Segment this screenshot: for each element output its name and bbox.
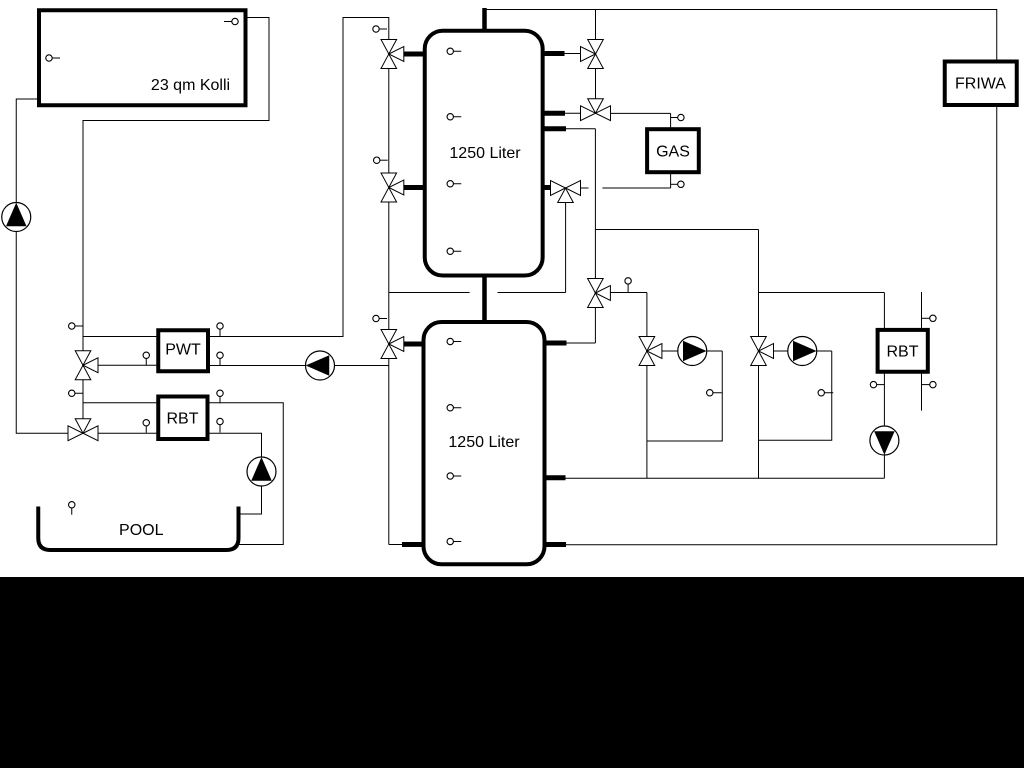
svg-text:FRIWA: FRIWA	[955, 75, 1006, 92]
svg-text:RBT: RBT	[167, 411, 199, 428]
svg-text:23 qm Kolli: 23 qm Kolli	[151, 77, 230, 94]
svg-text:POOL: POOL	[119, 522, 164, 539]
svg-text:RBT: RBT	[887, 344, 919, 361]
svg-text:GAS: GAS	[656, 143, 690, 160]
svg-text:1250 Liter: 1250 Liter	[448, 434, 520, 451]
svg-text:1250 Liter: 1250 Liter	[449, 145, 521, 162]
svg-text:PWT: PWT	[165, 341, 201, 358]
